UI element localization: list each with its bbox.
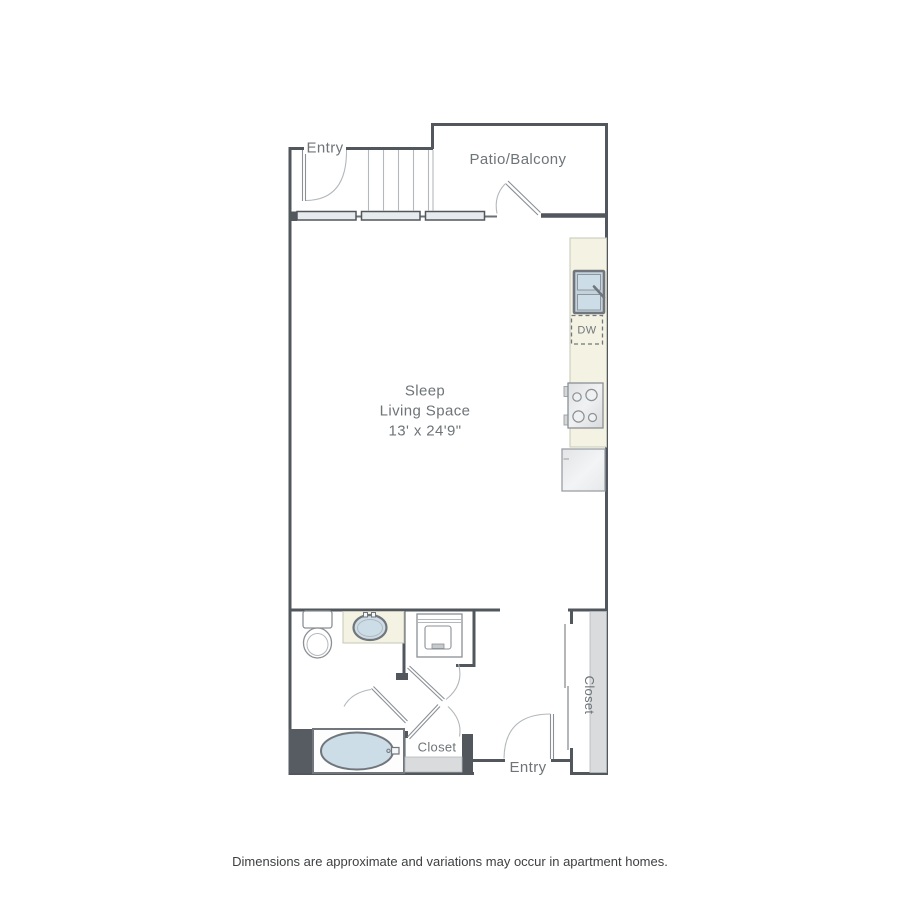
closet-bottom-label: Closet bbox=[418, 740, 457, 755]
sleep-label: Sleep bbox=[405, 383, 445, 400]
burner bbox=[589, 414, 597, 422]
window bbox=[297, 212, 356, 221]
dishwasher-label: DW bbox=[577, 325, 596, 337]
faucet-icon bbox=[364, 613, 368, 618]
living-space-label: Living Space bbox=[380, 403, 471, 420]
window-wall bbox=[289, 212, 498, 222]
burner bbox=[573, 393, 581, 401]
entry-bottom-door bbox=[504, 714, 554, 759]
laundry-door bbox=[408, 664, 460, 701]
stove bbox=[564, 383, 603, 428]
window bbox=[426, 212, 485, 221]
floorplan: Entry Patio/Balcony Sleep Living Space 1… bbox=[0, 0, 900, 900]
closet-right-label: Closet bbox=[582, 676, 597, 715]
closet-bottom-floor bbox=[405, 757, 462, 772]
floorplan-canvas: Entry Patio/Balcony Sleep Living Space 1… bbox=[0, 0, 900, 900]
disclaimer-text: Dimensions are approximate and variation… bbox=[232, 854, 668, 869]
closet-sliding-door bbox=[565, 624, 568, 750]
bathtub bbox=[289, 729, 405, 773]
entry-top-door bbox=[303, 150, 347, 201]
burner bbox=[573, 411, 584, 422]
stairs bbox=[369, 150, 434, 211]
washer-dryer bbox=[417, 614, 462, 657]
toilet bbox=[303, 611, 332, 658]
burner bbox=[586, 389, 597, 400]
refrigerator bbox=[562, 449, 605, 491]
room-dimensions-label: 13' x 24'9" bbox=[389, 423, 462, 440]
faucet-icon bbox=[372, 613, 376, 618]
window bbox=[362, 212, 421, 221]
patio-door bbox=[496, 181, 540, 215]
kitchen-sink bbox=[574, 271, 604, 313]
entry-top-label: Entry bbox=[306, 140, 343, 157]
faucet-icon bbox=[392, 748, 400, 755]
closet-bottom-door bbox=[408, 705, 461, 740]
patio-balcony-label: Patio/Balcony bbox=[470, 151, 567, 168]
outer-walls bbox=[289, 123, 609, 775]
entry-bottom-label: Entry bbox=[509, 759, 546, 776]
bathroom-door bbox=[344, 687, 408, 724]
